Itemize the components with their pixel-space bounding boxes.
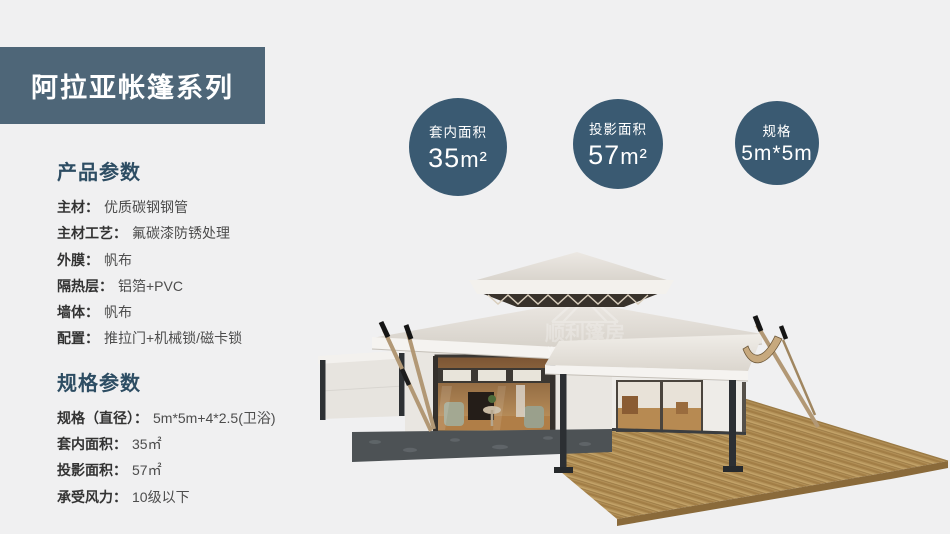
spec-value: 氟碳漆防锈处理 <box>132 225 230 241</box>
badge-value: 35m² <box>428 143 488 174</box>
spec-label: 墙体： <box>57 304 99 320</box>
spec-value: 57㎡ <box>132 462 162 478</box>
spec-value: 帆布 <box>104 252 132 268</box>
panorama-window <box>436 356 554 432</box>
spec-value: 优质碳钢钢管 <box>104 199 188 215</box>
badge-size: 规格 5m*5m <box>735 101 819 185</box>
spec-value: 35㎡ <box>132 436 162 452</box>
badge-value: 57m² <box>588 140 648 171</box>
spec-label: 主材： <box>57 199 99 215</box>
spec-label: 配置： <box>57 330 99 346</box>
tent-illustration: 顺利篷房 WELL TENT <box>300 228 950 534</box>
badge-unit: m² <box>620 144 648 169</box>
spec-label: 主材工艺： <box>57 225 127 241</box>
badge-label: 规格 <box>763 120 792 140</box>
spec-label: 投影面积： <box>57 462 127 478</box>
spec-value: 推拉门+机械锁/磁卡锁 <box>104 330 242 346</box>
spec-value: 铝箔+PVC <box>118 278 183 294</box>
spec-value: 5m*5m+4*2.5(卫浴) <box>153 410 276 426</box>
cap-roof <box>469 252 674 307</box>
spec-label: 规格（直径）： <box>57 410 148 426</box>
series-title-banner: 阿拉亚帐篷系列 <box>0 47 265 124</box>
spec-label: 外膜： <box>57 252 99 268</box>
series-title: 阿拉亚帐篷系列 <box>0 66 234 105</box>
badge-interior-area: 套内面积 35m² <box>409 98 507 196</box>
spec-label: 套内面积： <box>57 436 127 452</box>
badge-label: 投影面积 <box>589 118 647 138</box>
spec-label: 承受风力： <box>57 489 127 505</box>
badge-label: 套内面积 <box>429 121 487 141</box>
spec-row-material: 主材：优质碳钢钢管 <box>57 194 397 220</box>
spec-value: 帆布 <box>104 304 132 320</box>
front-awning <box>545 334 763 381</box>
tent-product-image: 顺利篷房 WELL TENT <box>300 228 950 534</box>
product-sheet-page: 阿拉亚帐篷系列 产品参数 主材：优质碳钢钢管 主材工艺：氟碳漆防锈处理 外膜：帆… <box>0 0 950 534</box>
porch-wall <box>612 377 746 435</box>
badge-unit: m² <box>460 147 488 172</box>
badge-value: 5m*5m <box>741 142 813 166</box>
badge-projected-area: 投影面积 57m² <box>573 99 663 189</box>
spec-label: 隔热层： <box>57 278 113 294</box>
product-params-heading: 产品参数 <box>57 156 397 185</box>
spec-value: 10级以下 <box>132 489 190 505</box>
